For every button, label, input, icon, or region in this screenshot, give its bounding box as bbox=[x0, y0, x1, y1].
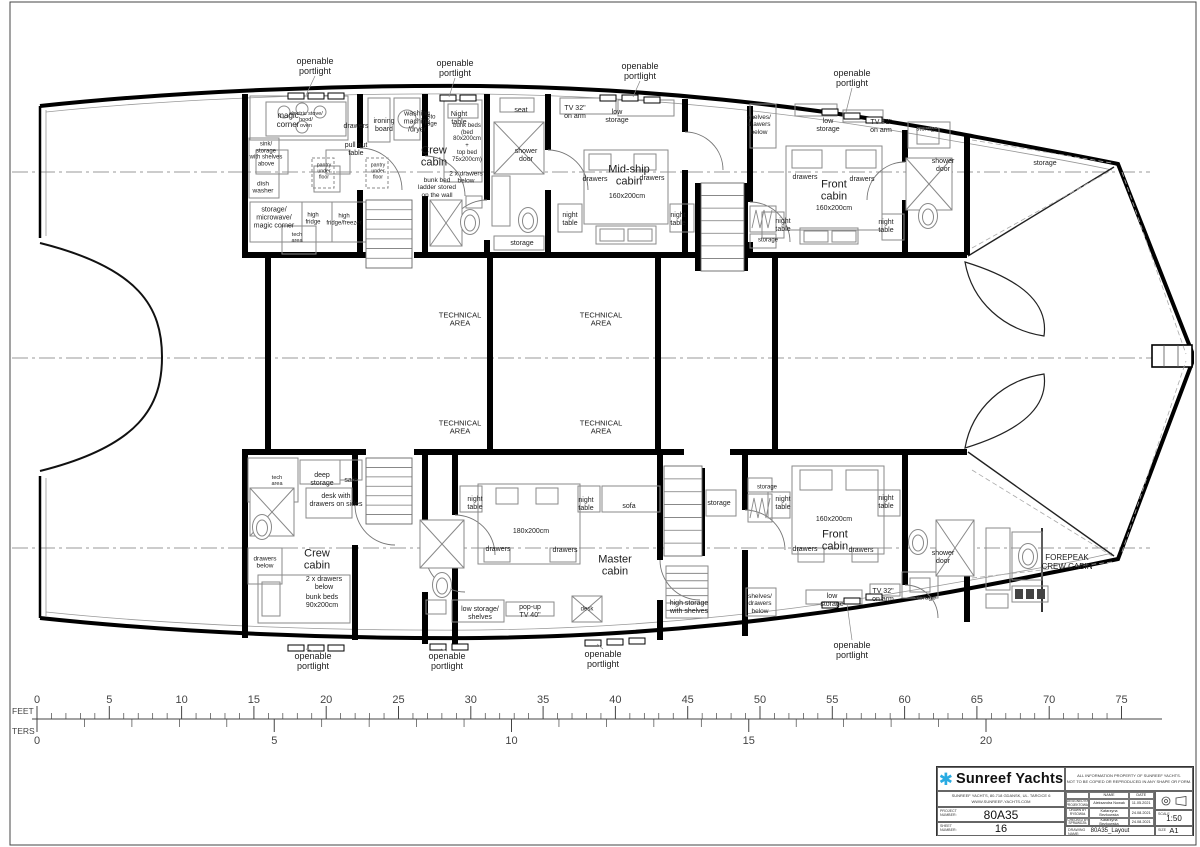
drawing-sheet: 05101520253035404550556065707505101520 o… bbox=[0, 0, 1200, 847]
ruler-feet-number: 10 bbox=[175, 694, 187, 706]
project-number-cell: PROJECT NUMBER: 80A35 bbox=[937, 807, 1065, 822]
title-block: ✱ Sunreef Yachts ALL INFORMATION PROPERT… bbox=[936, 766, 1194, 836]
floorplan-drawing: 05101520253035404550556065707505101520 bbox=[0, 0, 1200, 847]
sig-role: DESIGNED BY PROJEKTOWAŁ bbox=[1066, 799, 1089, 808]
ruler-feet-number: 35 bbox=[537, 694, 549, 706]
sig-header-date: DATE bbox=[1129, 792, 1154, 799]
bath-fixtures bbox=[250, 122, 1038, 622]
company-name: Sunreef Yachts bbox=[956, 771, 1063, 787]
ruler-meters-number: 20 bbox=[980, 735, 992, 747]
bow-fitting bbox=[1152, 345, 1192, 367]
copyright-notice: ALL INFORMATION PROPERTY OF SUNREEF YACH… bbox=[1065, 767, 1193, 791]
sig-header-blank bbox=[1066, 792, 1089, 799]
project-number-value: 80A35 bbox=[938, 808, 1064, 821]
ruler-meters-number: 15 bbox=[743, 735, 755, 747]
ruler-feet-number: 25 bbox=[392, 694, 404, 706]
sunreef-star-icon: ✱ bbox=[939, 771, 953, 788]
ruler-meters-number: 5 bbox=[271, 735, 277, 747]
projection-symbol-icon bbox=[1159, 794, 1189, 808]
sig-date: 24.08.2021 bbox=[1129, 818, 1154, 826]
ruler-feet-number: 75 bbox=[1115, 694, 1127, 706]
ruler-feet-number: 55 bbox=[826, 694, 838, 706]
sig-date: 11.05.2021 bbox=[1129, 799, 1154, 808]
drawing-name-cell: DRAWING NAME: 80A35_Layout bbox=[1065, 826, 1155, 836]
sig-date: 24.08.2021 bbox=[1129, 808, 1154, 817]
sig-name: Katarzyna Bezkowska bbox=[1089, 808, 1128, 817]
sig-name: Aleksandra Nowak bbox=[1089, 799, 1128, 808]
portlights bbox=[288, 93, 882, 651]
drawing-name-value: 80A35_Layout bbox=[1066, 827, 1154, 835]
ruler-feet-number: 20 bbox=[320, 694, 332, 706]
ruler-feet-label: FEET bbox=[12, 706, 34, 716]
ruler-meters-label: TERS bbox=[12, 726, 35, 736]
company-address: SUNREEF YACHTS, 80-718 GDANSK, UL. TARCI… bbox=[937, 791, 1065, 807]
ruler-feet-number: 60 bbox=[898, 694, 910, 706]
ruler-feet-number: 40 bbox=[609, 694, 621, 706]
ruler-feet-number: 5 bbox=[106, 694, 112, 706]
sig-name: Katarzyna Bezkowska bbox=[1089, 818, 1128, 826]
signature-table: NAME DATE DESIGNED BY PROJEKTOWAŁ Aleksa… bbox=[1065, 791, 1155, 826]
ruler-feet-number: 45 bbox=[682, 694, 694, 706]
sig-role: CHECKED BY SPRAWDZIŁ bbox=[1066, 818, 1089, 826]
ruler-feet-number: 65 bbox=[971, 694, 983, 706]
sig-role: DRAWN BY RYSOWAŁ bbox=[1066, 808, 1089, 817]
ruler-feet-number: 15 bbox=[248, 694, 260, 706]
scale-ruler: 05101520253035404550556065707505101520 bbox=[32, 694, 1162, 747]
scale-cell: SCALE 1:50 bbox=[1155, 810, 1193, 826]
ruler-feet-number: 70 bbox=[1043, 694, 1055, 706]
ruler-feet-number: 30 bbox=[465, 694, 477, 706]
logo-cell: ✱ Sunreef Yachts bbox=[937, 767, 1065, 791]
sig-header-name: NAME bbox=[1089, 792, 1128, 799]
ruler-meters-number: 0 bbox=[34, 735, 40, 747]
sheet-number-value: 16 bbox=[938, 823, 1064, 835]
ruler-feet-number: 0 bbox=[34, 694, 40, 706]
projection-symbol-cell bbox=[1155, 791, 1193, 810]
sheet-number-cell: SHEET NUMBER: 16 bbox=[937, 822, 1065, 836]
size-cell: SIZE A1 bbox=[1155, 826, 1193, 836]
ruler-feet-number: 50 bbox=[754, 694, 766, 706]
scale-value: 1:50 bbox=[1156, 811, 1192, 825]
ruler-meters-number: 10 bbox=[505, 735, 517, 747]
size-value: A1 bbox=[1156, 827, 1192, 835]
